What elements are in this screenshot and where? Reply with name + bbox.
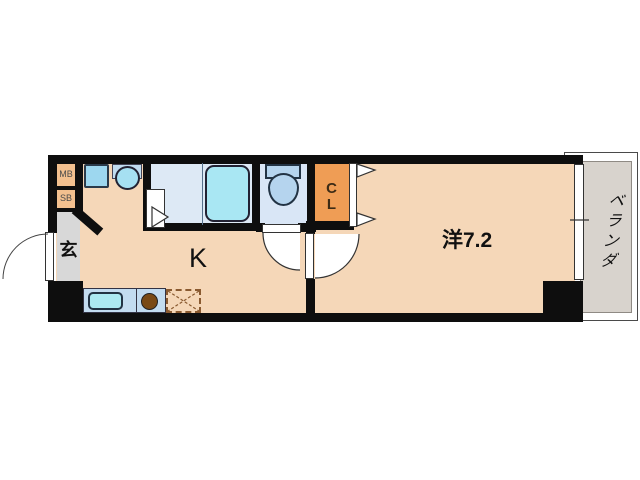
entrance-door-swing-arc: [3, 234, 48, 279]
wall-mb-sb-divider: [57, 186, 75, 190]
entrance-label: 玄: [57, 236, 80, 262]
refrigerator-space: [166, 289, 201, 313]
wall-bottom: [48, 313, 583, 322]
room-door: [305, 233, 314, 279]
washing-machine-pan: [84, 164, 109, 188]
bathroom-folding-door: [146, 189, 165, 228]
wall-left-upper: [48, 155, 57, 233]
pillar-bottom-left: [48, 281, 83, 322]
toilet-door: [262, 224, 301, 233]
bathroom-divider-line: [202, 163, 203, 225]
wall-top: [48, 155, 583, 164]
closet-folding-door: [349, 163, 357, 227]
floorplan-canvas: MB SB 玄 K 洋7.2 C L ベランダ: [0, 0, 640, 480]
kitchen-label: K: [189, 243, 207, 274]
meter-box-label: MB: [57, 169, 75, 179]
western-room-label: 洋7.2: [442, 224, 492, 254]
closet-label-l: L: [314, 196, 349, 213]
wall-k-room-lower: [306, 279, 315, 321]
entrance-door: [45, 232, 54, 281]
sliding-window: [574, 164, 584, 280]
washbasin: [115, 166, 140, 190]
kitchen-counter-divider: [136, 288, 137, 313]
shoe-box-label: SB: [57, 193, 75, 203]
wall-bath-toilet: [252, 155, 260, 225]
kitchen-sink: [88, 292, 123, 310]
bathtub: [205, 165, 250, 222]
pillar-bottom-right: [543, 281, 583, 321]
gas-burner: [141, 293, 158, 310]
wall-mb-right: [75, 155, 83, 212]
closet-label-c: C: [314, 180, 349, 197]
